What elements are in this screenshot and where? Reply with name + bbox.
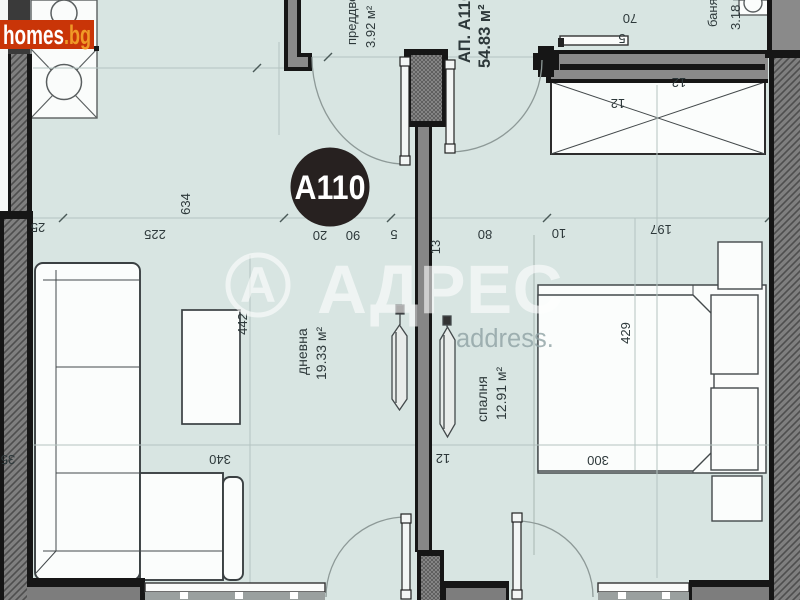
svg-text:address.: address.: [456, 325, 554, 353]
svg-text:преддверие: преддверие: [344, 0, 359, 45]
svg-text:340: 340: [209, 452, 231, 467]
svg-text:70: 70: [623, 11, 637, 26]
svg-text:.bg: .bg: [64, 20, 91, 50]
svg-text:баня: баня: [705, 0, 720, 27]
svg-text:12.91 м²: 12.91 м²: [493, 366, 509, 420]
svg-text:20: 20: [313, 228, 327, 243]
svg-text:25: 25: [31, 220, 45, 235]
svg-text:197: 197: [650, 222, 672, 237]
svg-text:12: 12: [611, 96, 625, 111]
svg-text:homes: homes: [3, 20, 64, 50]
svg-text:300: 300: [587, 453, 609, 468]
svg-text:225: 225: [144, 227, 166, 242]
svg-text:10: 10: [552, 226, 566, 241]
svg-text:19.33 м²: 19.33 м²: [313, 326, 329, 380]
svg-text:634: 634: [178, 193, 193, 215]
svg-text:12: 12: [436, 451, 450, 466]
svg-text:5: 5: [618, 31, 625, 46]
svg-text:80: 80: [478, 227, 492, 242]
svg-text:3.18 м²: 3.18 м²: [728, 0, 743, 30]
svg-text:А110: А110: [295, 169, 366, 207]
svg-text:429: 429: [618, 322, 633, 344]
svg-text:35: 35: [1, 452, 15, 467]
svg-text:3.92 м²: 3.92 м²: [363, 5, 378, 48]
svg-text:АП. А110: АП. А110: [456, 0, 474, 63]
svg-text:442: 442: [235, 313, 250, 335]
svg-text:спалня: спалня: [474, 376, 490, 422]
svg-text:А: А: [240, 257, 276, 313]
svg-text:54.83 м²: 54.83 м²: [476, 4, 494, 68]
svg-text:АДРЕС: АДРЕС: [317, 251, 563, 328]
svg-text:5: 5: [390, 227, 397, 242]
svg-text:12: 12: [672, 75, 686, 90]
svg-text:90: 90: [346, 228, 360, 243]
svg-text:дневна: дневна: [294, 328, 310, 375]
